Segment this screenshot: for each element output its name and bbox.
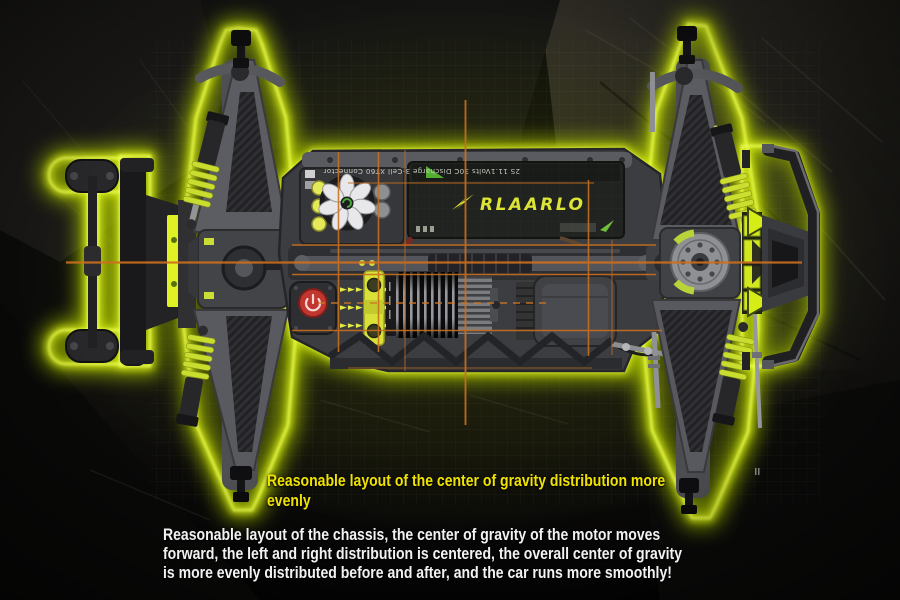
heading-line: evenly: [267, 491, 665, 511]
center-of-gravity-heading: Reasonable layout of the center of gravi…: [267, 471, 665, 511]
description-paragraph: Reasonable layout of the chassis, the ce…: [163, 526, 682, 583]
paragraph-line: forward, the left and right distribution…: [163, 545, 682, 564]
product-banner: 2S 11.1Volts 30C Discharge 3-Cell XT60 C…: [0, 0, 900, 600]
paragraph-line: Reasonable layout of the chassis, the ce…: [163, 526, 682, 545]
paragraph-line: is more evenly distributed before and af…: [163, 564, 682, 583]
heading-line: Reasonable layout of the center of gravi…: [267, 471, 665, 491]
